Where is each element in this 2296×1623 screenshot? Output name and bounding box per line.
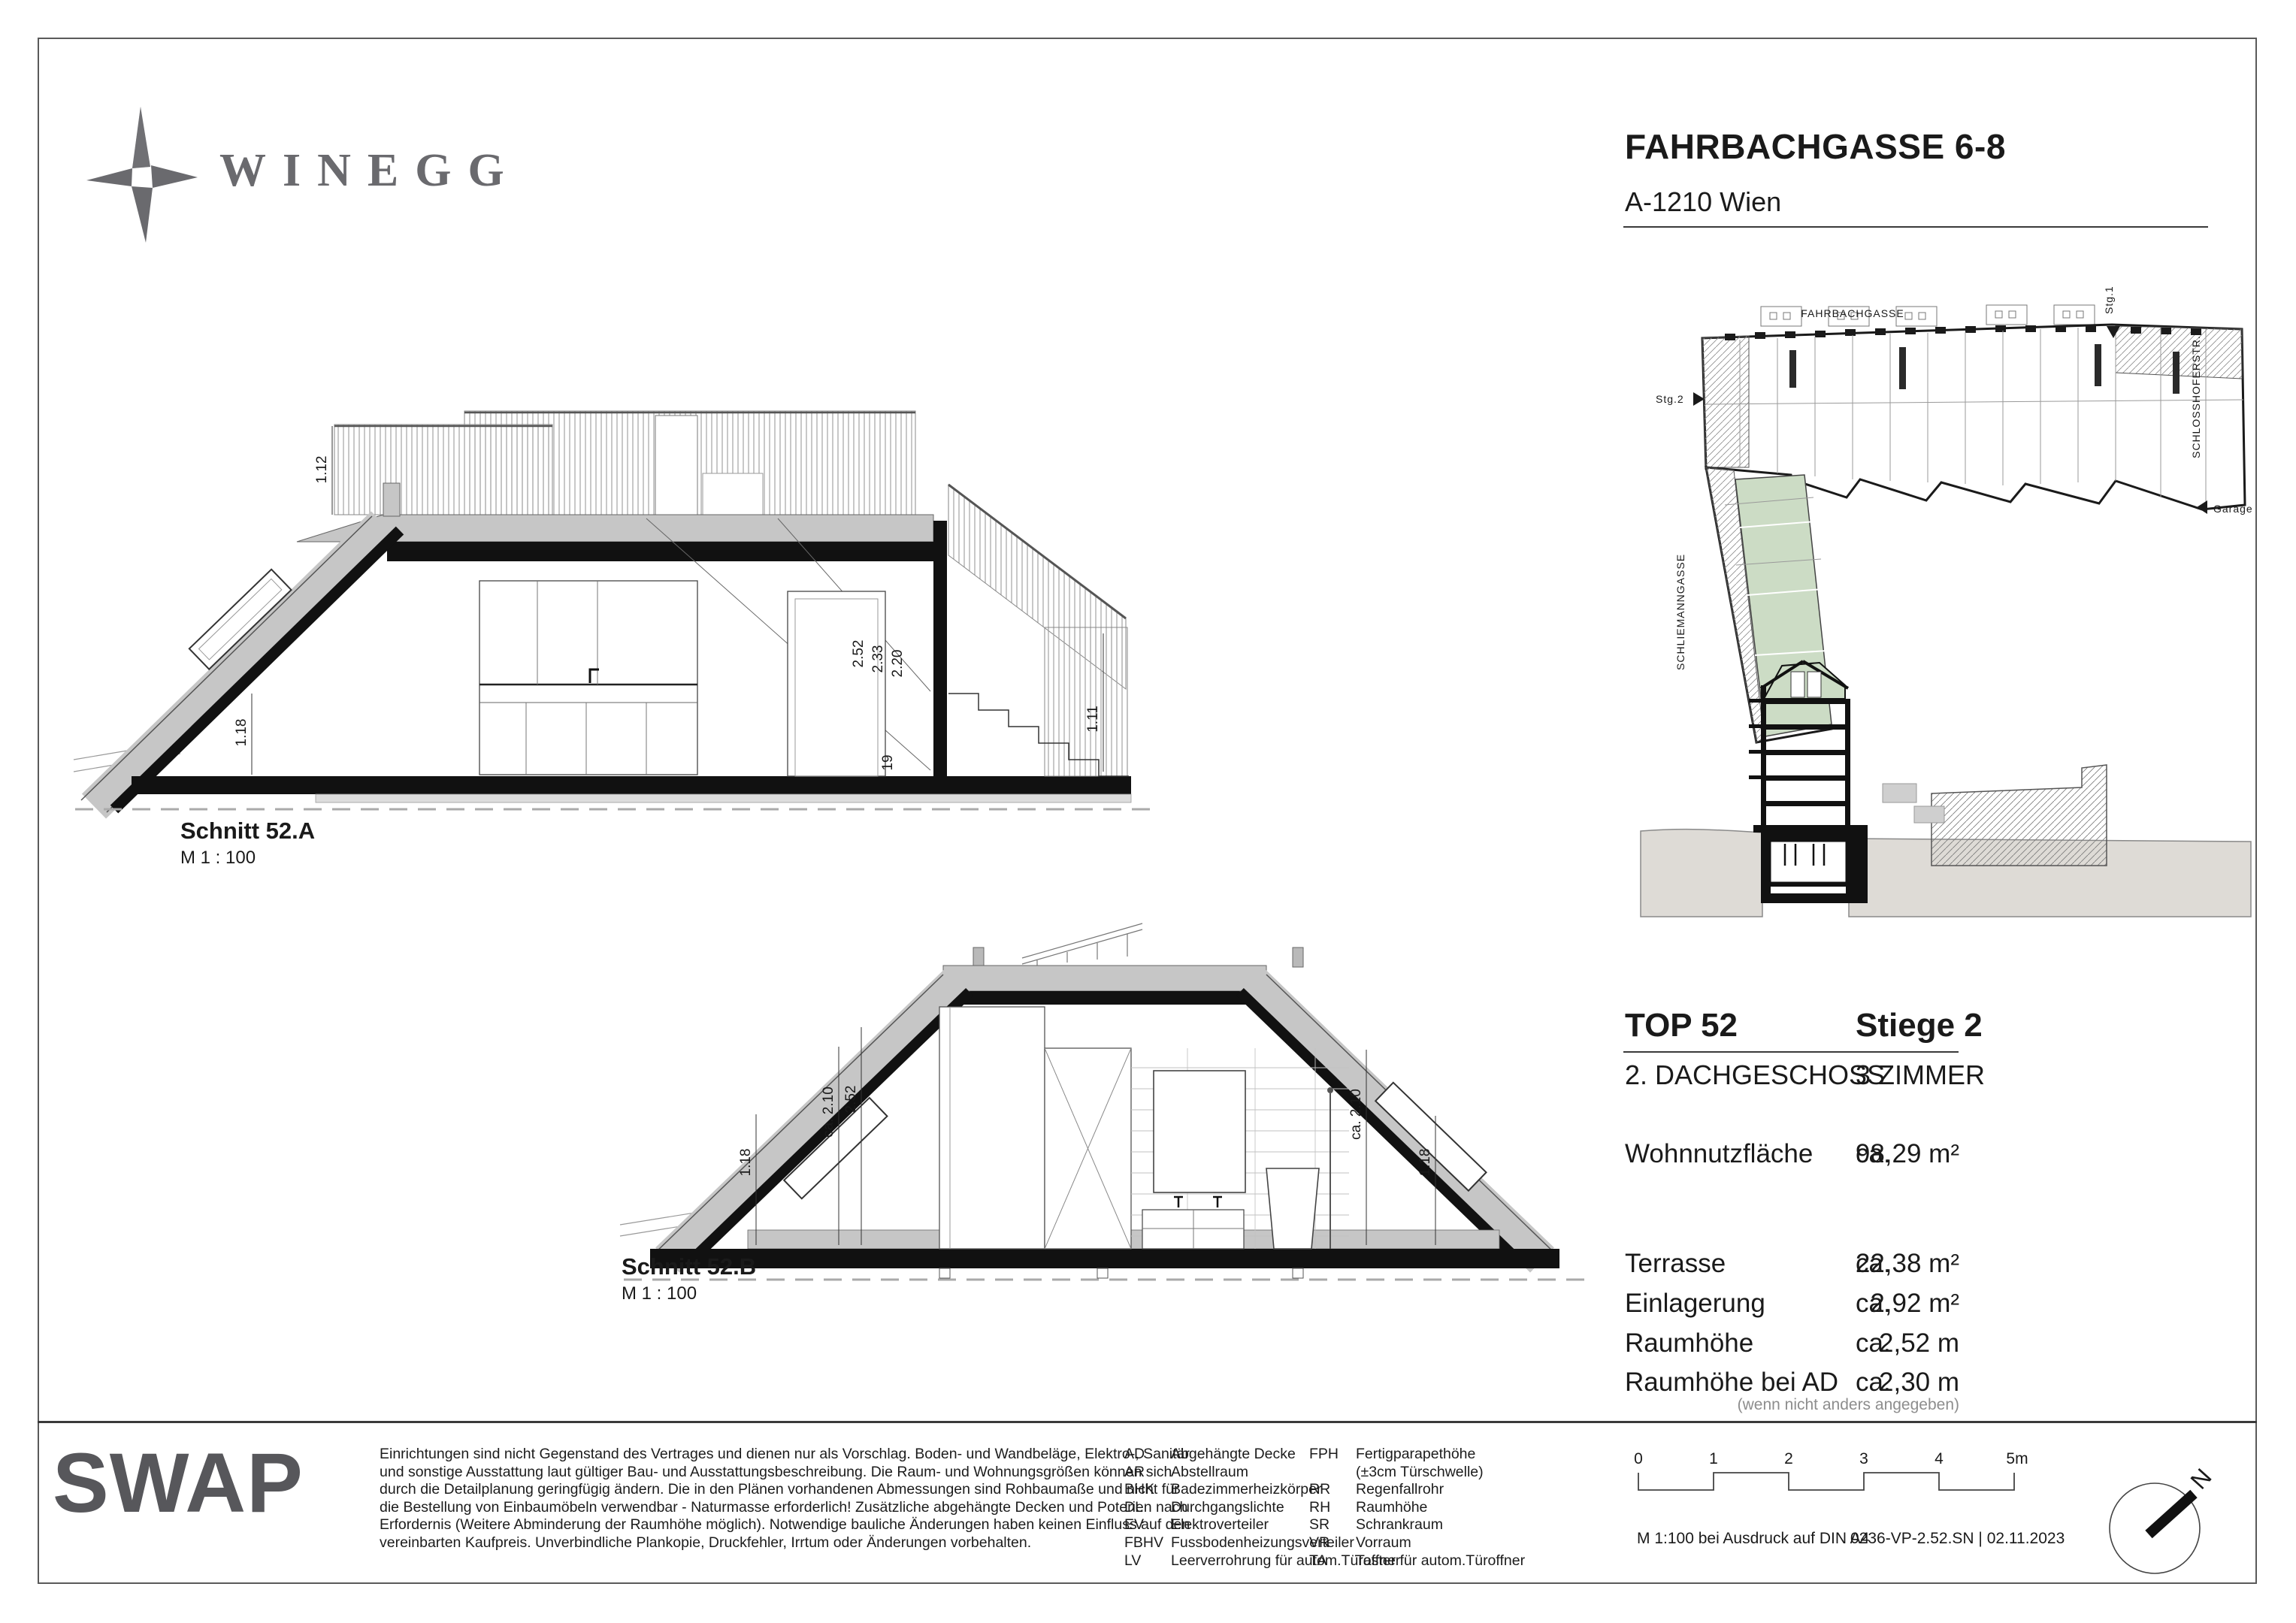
unit-floor-label: 2. DACHGESCHOSS: [1625, 1059, 1885, 1091]
footer-separator: [38, 1421, 2257, 1423]
brand-wordmark: WINEGG: [219, 144, 521, 198]
legend-entry: VRVorraum: [1309, 1534, 1525, 1552]
detail-value: 2,52 m: [1845, 1328, 1959, 1359]
detail-value: 2,92 m²: [1845, 1289, 1959, 1319]
scale-tick: 0: [1634, 1450, 1643, 1467]
legend-abbr: FPH: [1309, 1446, 1356, 1481]
legend-label: Fertigparapethöhe (±3cm Türschwelle): [1356, 1446, 1484, 1481]
garage-label: Garage: [2213, 503, 2253, 515]
legend-abbr: RH: [1309, 1499, 1356, 1517]
area-value: 98,29 m²: [1845, 1139, 1959, 1169]
detail-label: Raumhöhe: [1625, 1328, 1753, 1359]
section-a-drawing: 1.12 1.18 2.52 2.33 2.20 19 1.11: [68, 394, 1157, 815]
detail-value: 2,30 m: [1845, 1368, 1959, 1398]
legend-abbr: DL: [1124, 1499, 1171, 1517]
dim-label: ca. 2.10: [1348, 1089, 1364, 1140]
unit-stair-label: Stiege 2: [1856, 1007, 1983, 1044]
disclaimer-line: durch die Detailplanung geringfügig ände…: [380, 1481, 1190, 1499]
legend-column-2: FPHFertigparapethöhe (±3cm Türschwelle) …: [1309, 1446, 1525, 1570]
dim-label: 1.18: [738, 1149, 754, 1177]
legend-label: Elektroverteiler: [1171, 1516, 1269, 1534]
legend-label: Badezimmerheizkörper: [1171, 1481, 1322, 1499]
detail-label: Terrasse: [1625, 1249, 1726, 1279]
scale-tick: 4: [1935, 1450, 1944, 1467]
disclaimer-block: Einrichtungen sind nicht Gegenstand des …: [380, 1446, 1190, 1552]
disclaimer-line: vereinbarten Kaufpreis. Unverbindliche P…: [380, 1534, 1190, 1552]
unit-rooms-label: 3 ZIMMER: [1856, 1059, 1985, 1091]
scale-tick: 1: [1709, 1450, 1718, 1467]
project-city: A-1210 Wien: [1625, 186, 1781, 218]
dim-label: 2.20: [890, 650, 906, 678]
disclaimer-line: die Bestellung von Einbaumöbeln verwendb…: [380, 1499, 1190, 1517]
legend-abbr: SR: [1309, 1516, 1356, 1534]
legend-abbr: VR: [1309, 1534, 1356, 1552]
detail-value: 22,38 m²: [1845, 1249, 1959, 1279]
stair2-label: Stg.2: [1656, 393, 1684, 405]
legend-entry: RRRegenfallrohr: [1309, 1481, 1525, 1499]
dim-label: 1.12: [314, 456, 330, 484]
legend-abbr: AR: [1124, 1464, 1171, 1482]
detail-label: Einlagerung: [1625, 1289, 1765, 1319]
project-title: FAHRBACHGASSE 6-8: [1625, 126, 2006, 167]
section-b-scale: M 1 : 100: [622, 1283, 697, 1304]
compass-icon: N: [2101, 1465, 2225, 1589]
legend-abbr: RR: [1309, 1481, 1356, 1499]
compass-n-label: N: [2185, 1463, 2216, 1494]
dim-label: ca. 2.10: [821, 1087, 836, 1138]
legend-label: Vorraum: [1356, 1534, 1411, 1552]
legend-label: Abgehängte Decke: [1171, 1446, 1296, 1464]
legend-label: Abstellraum: [1171, 1464, 1248, 1482]
legend-abbr: FBHV: [1124, 1534, 1171, 1552]
dim-label: 1.18: [234, 719, 250, 747]
legend-entry: FPHFertigparapethöhe (±3cm Türschwelle): [1309, 1446, 1525, 1481]
legend-entry: SRSchrankraum: [1309, 1516, 1525, 1534]
disclaimer-line: Erfordernis (Weitere Abminderung der Rau…: [380, 1516, 1190, 1534]
street-label-top: FAHRBACHGASSE: [1801, 307, 1904, 319]
legend-label: Taster für autom.Türoffner: [1356, 1552, 1525, 1570]
unit-top-label: TOP 52: [1625, 1007, 1738, 1044]
section-a-scale: M 1 : 100: [180, 848, 256, 869]
street-label-right: SCHLOSSHOFERSTR.: [2190, 335, 2202, 458]
neighbor-building-hatch: [1931, 765, 2107, 866]
dim-label: 1.18: [1417, 1149, 1433, 1177]
scale-bar: 0 1 2 3 4 5m: [1629, 1449, 2050, 1505]
legend-label: Regenfallrohr: [1356, 1481, 1444, 1499]
legend-entry: RHRaumhöhe: [1309, 1499, 1525, 1517]
dim-label: 2.52: [851, 640, 867, 668]
area-label: Wohnnutzfläche: [1625, 1139, 1813, 1169]
unit-rule: [1623, 1051, 1959, 1053]
section-b-title: Schnitt 52.B: [622, 1253, 756, 1280]
swap-logo: SWAP: [53, 1441, 304, 1525]
section-a-title: Schnitt 52.A: [180, 818, 315, 845]
winegg-star-icon: [86, 105, 199, 244]
legend-abbr: EV: [1124, 1516, 1171, 1534]
section-b-drawing: 1.18 ca. 2.10 2.52 ca. 2.10 1.18: [616, 920, 1593, 1289]
legend-entry: TATaster für autom.Türoffner: [1309, 1552, 1525, 1570]
legend-abbr: AD: [1124, 1446, 1171, 1464]
legend-label: Schrankraum: [1356, 1516, 1443, 1534]
scale-tick: 5m: [2006, 1450, 2028, 1467]
scale-tick: 3: [1859, 1450, 1868, 1467]
annex-block: [1914, 806, 1944, 823]
disclaimer-line: Einrichtungen sind nicht Gegenstand des …: [380, 1446, 1190, 1464]
header-rule: [1623, 226, 2208, 228]
legend-label: Durchgangslichte: [1171, 1499, 1284, 1517]
dim-label: 2.33: [870, 645, 886, 673]
legend-abbr: TA: [1309, 1552, 1356, 1570]
plan-document-page: { "header": { "brand": "WINEGG", "projec…: [0, 0, 2296, 1623]
tower-section: [1749, 661, 1868, 903]
legend-abbr: BHK: [1124, 1481, 1171, 1499]
annex-block: [1883, 784, 1916, 802]
doc-reference: 0236-VP-2.52.SN | 02.11.2023: [1850, 1530, 2065, 1548]
building-cross-section: [1635, 652, 2266, 923]
dim-label: 2.52: [843, 1086, 859, 1114]
scale-tick: 2: [1784, 1450, 1793, 1467]
detail-label: Raumhöhe bei AD: [1625, 1368, 1838, 1398]
section-a-furniture: [479, 581, 885, 776]
print-scale-note: M 1:100 bei Ausdruck auf DIN A4: [1637, 1530, 1869, 1548]
unit-note: (wenn nicht anders angegeben): [1625, 1396, 1959, 1414]
legend-abbr: LV: [1124, 1552, 1171, 1570]
disclaimer-line: und sonstige Ausstattung laut gültiger B…: [380, 1464, 1190, 1482]
legend-label: Raumhöhe: [1356, 1499, 1427, 1517]
dim-label: 19: [880, 754, 896, 770]
dim-label: 1.11: [1085, 706, 1101, 733]
stair1-label: Stg.1: [2103, 286, 2115, 314]
